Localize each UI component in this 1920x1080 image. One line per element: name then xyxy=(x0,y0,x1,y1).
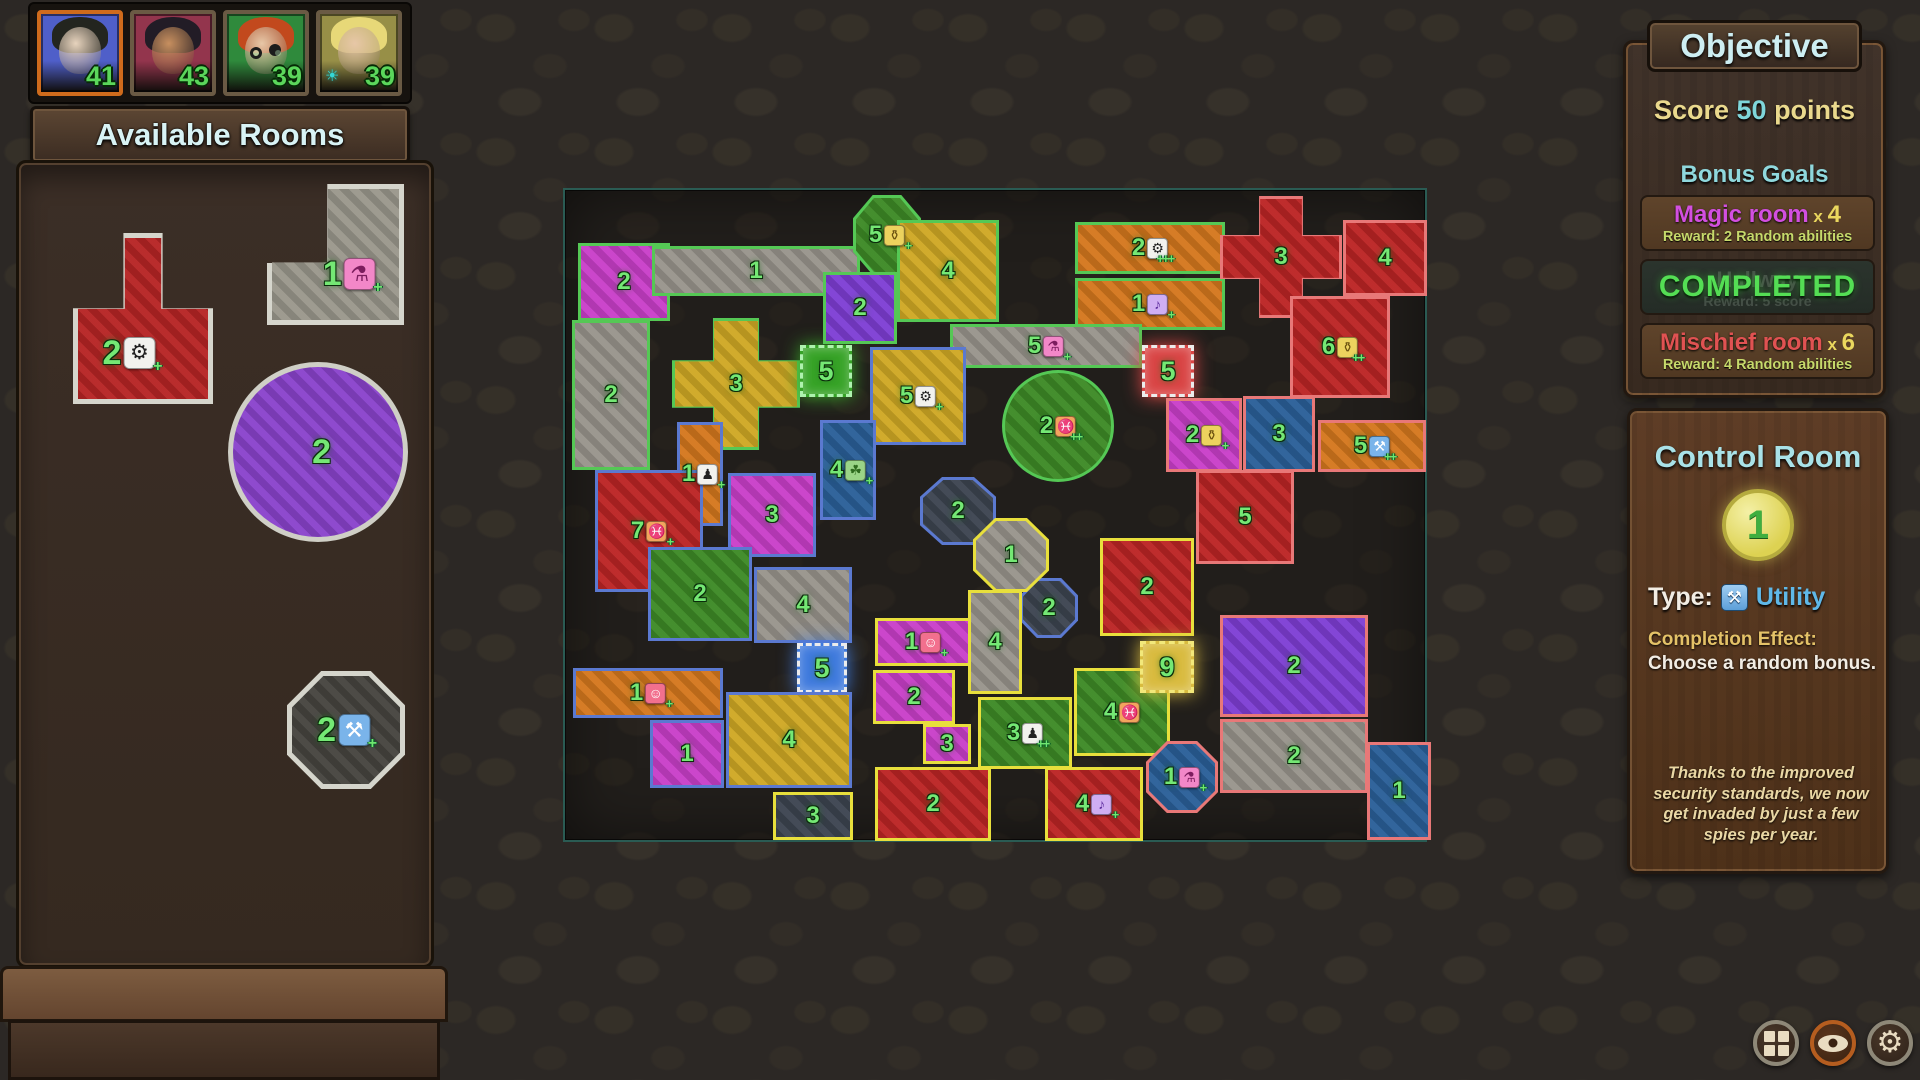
player-score: 43 xyxy=(179,61,209,92)
room-content: 2 xyxy=(1287,744,1300,768)
room-content: 3♟++ xyxy=(1007,721,1043,745)
view-eye-button[interactable] xyxy=(1810,1020,1856,1066)
type-value: Utility xyxy=(1756,583,1825,612)
room-number: 3 xyxy=(765,503,778,527)
map-bonus-tile[interactable]: 5 xyxy=(800,345,852,397)
plus-marks: + xyxy=(718,477,724,492)
map-room[interactable]: 6⚱++ xyxy=(1290,296,1390,398)
gear-icon: ⚙+ xyxy=(915,386,936,407)
flavor-text: Thanks to the improved security standard… xyxy=(1646,763,1876,846)
plus-marks: + xyxy=(666,696,672,711)
plus-marks: + xyxy=(373,279,380,297)
room-number: 2 xyxy=(951,499,964,523)
tile-floor xyxy=(78,238,208,399)
wrench-icon: ⚒++ xyxy=(1369,436,1390,457)
room-number: 5 xyxy=(814,655,829,682)
tile-number: 2 xyxy=(317,713,336,747)
plus-marks: +++ xyxy=(1156,251,1173,266)
room-number: 1 xyxy=(749,259,762,283)
room-content: 2⚱+ xyxy=(1186,423,1222,447)
map-room[interactable]: 2⚙+++ xyxy=(1075,222,1225,274)
score-value: 50 xyxy=(1737,95,1767,125)
map-room[interactable]: 5⚙+ xyxy=(870,347,966,445)
room-number: 2 xyxy=(926,792,939,816)
room-content: 5 xyxy=(1238,505,1251,529)
map-room[interactable]: 2⚱+ xyxy=(1166,398,1242,472)
plus-marks: ++ xyxy=(1384,449,1395,464)
available-rooms-header: Available Rooms xyxy=(30,106,410,164)
room-number: 1 xyxy=(1164,765,1177,789)
selected-room-panel: Control Room 1 Type: ⚒ Utility Completio… xyxy=(1627,408,1889,874)
type-label: Type: xyxy=(1648,583,1713,612)
goal-name-line: Mischief room x 6 xyxy=(1660,329,1855,357)
plus-marks: + xyxy=(1064,349,1070,364)
room-number: 5 xyxy=(818,358,833,385)
mischief-smiley-icon: ☺+ xyxy=(645,683,666,704)
objective-header: Objective xyxy=(1647,20,1862,72)
room-content: 1☺+ xyxy=(905,630,941,654)
room-number: 1 xyxy=(1392,779,1405,803)
map-room[interactable]: 2 xyxy=(572,320,650,470)
map-room[interactable]: 1♪+ xyxy=(1075,278,1225,330)
map-room[interactable]: 2 xyxy=(823,272,897,344)
treasure-bag-icon: ⚱++ xyxy=(1337,337,1358,358)
player-portrait[interactable]: 39 xyxy=(223,10,309,96)
completion-effect-text: Choose a random bonus. xyxy=(1648,653,1876,675)
room-number: 5 xyxy=(1238,505,1251,529)
room-content: 7♓+ xyxy=(631,519,667,543)
room-content: 2 xyxy=(1287,654,1300,678)
room-number: 9 xyxy=(1159,654,1174,681)
player-score: 39 xyxy=(272,61,302,92)
map-room[interactable]: 4 xyxy=(897,220,999,322)
room-content: 4 xyxy=(796,593,809,617)
room-content: 2 xyxy=(907,685,920,709)
plus-marks: + xyxy=(1200,780,1206,795)
room-number: 3 xyxy=(729,372,742,396)
gear-icon: ⚙ xyxy=(1877,1028,1904,1058)
player-score: 39 xyxy=(365,61,395,92)
room-number: 2 xyxy=(1040,414,1053,438)
music-note-icon: ♪+ xyxy=(1091,794,1112,815)
potion-icon: ⚗+ xyxy=(344,258,376,290)
room-number: 2 xyxy=(1287,654,1300,678)
potion-icon: ⚗+ xyxy=(1179,767,1200,788)
score-prefix: Score xyxy=(1654,95,1729,125)
settings-gear-button[interactable]: ⚙ xyxy=(1867,1020,1913,1066)
tile-content: 1⚗+ xyxy=(323,257,376,291)
person-icon: ♟++ xyxy=(1022,723,1043,744)
room-content: 1 xyxy=(680,742,693,766)
plus-marks: + xyxy=(866,473,872,488)
map-room[interactable]: 3♟++ xyxy=(978,697,1072,769)
mischief-smiley-icon: ☺+ xyxy=(920,632,941,653)
score-suffix: points xyxy=(1774,95,1855,125)
plus-marks: + xyxy=(1112,807,1118,822)
map-room[interactable]: 4♪+ xyxy=(1045,767,1143,841)
room-content: 5⚒++ xyxy=(1354,434,1390,458)
available-room-tile[interactable]: 2⚙+ xyxy=(73,233,213,404)
room-content: 2♓++ xyxy=(1040,414,1076,438)
room-number: 2 xyxy=(617,270,630,294)
room-number: 2 xyxy=(1140,575,1153,599)
room-number: 2 xyxy=(1186,423,1199,447)
room-content: 1♪+ xyxy=(1132,292,1168,316)
tile-number: 1 xyxy=(323,257,342,291)
sun-icon: ☀ xyxy=(325,66,339,86)
room-content: 2⚙+++ xyxy=(1132,236,1168,260)
map-room[interactable]: 2 xyxy=(1220,615,1368,717)
goal-completed-label: COMPLETED xyxy=(1659,270,1856,304)
room-content: 1♟+ xyxy=(682,462,718,486)
room-content: 4♪+ xyxy=(1076,792,1112,816)
available-room-tile[interactable]: 2 xyxy=(228,362,408,542)
fish-icon: ♓++ xyxy=(1055,416,1076,437)
room-number: 4 xyxy=(988,630,1001,654)
bonus-goals-title: Bonus Goals xyxy=(1626,161,1883,189)
room-number: 1 xyxy=(1132,292,1145,316)
room-content: 5⚙+ xyxy=(900,384,936,408)
map-bonus-tile[interactable]: 9 xyxy=(1140,641,1194,693)
map-room[interactable]: 3 xyxy=(1243,396,1315,472)
map-room[interactable]: 3 xyxy=(773,792,853,840)
room-content: 2 xyxy=(693,582,706,606)
map-room[interactable]: 4 xyxy=(754,567,852,643)
selected-room-title: Control Room xyxy=(1630,439,1886,475)
plus-marks: ++ xyxy=(1037,736,1048,751)
game-stage: 414339☀39 Available Rooms 2⚙+1⚗+22⚒+ 212… xyxy=(0,0,1920,1080)
available-rooms-title: Available Rooms xyxy=(96,117,345,153)
map-room[interactable]: 1☺+ xyxy=(573,668,723,718)
map-room[interactable]: 1 xyxy=(1367,742,1431,840)
room-number: 1 xyxy=(682,462,695,486)
treasure-bag-icon: ⚱+ xyxy=(884,225,905,246)
goal-multiplier: x 4 xyxy=(1809,207,1841,226)
room-content: 3 xyxy=(1272,422,1285,446)
leaf-icon: ☘+ xyxy=(845,460,866,481)
tile-content: 2⚒+ xyxy=(317,713,370,747)
bonus-goal-completed: HallwayReward: 5 scoreCOMPLETED xyxy=(1640,259,1875,315)
map-room[interactable]: 2 xyxy=(875,767,991,841)
map-bonus-tile[interactable]: 5 xyxy=(1142,345,1194,397)
room-number: 5 xyxy=(1354,434,1367,458)
potion-icon: ⚗+ xyxy=(1043,336,1064,357)
room-content: 5⚗+ xyxy=(1028,334,1064,358)
tile-number: 2 xyxy=(312,435,331,469)
room-number: 2 xyxy=(1132,236,1145,260)
map-room[interactable]: 1 xyxy=(650,720,724,788)
map-room[interactable]: 3 xyxy=(728,473,816,557)
available-room-tile[interactable]: 2⚒+ xyxy=(287,671,405,789)
map-room[interactable]: 4 xyxy=(726,692,852,788)
room-content: 3 xyxy=(806,804,819,828)
room-number: 2 xyxy=(604,383,617,407)
completion-effect-label: Completion Effect: xyxy=(1648,629,1817,651)
room-number: 4 xyxy=(830,458,843,482)
room-content: 4☘+ xyxy=(830,458,866,482)
goal-name-line: Magic room x 4 xyxy=(1674,201,1841,229)
tile-content: 2 xyxy=(312,435,331,469)
room-number: 3 xyxy=(940,732,953,756)
room-content: 4 xyxy=(782,728,795,752)
map-room[interactable]: 1 xyxy=(973,518,1049,592)
room-number: 2 xyxy=(1042,596,1055,620)
map-room[interactable]: 4☘+ xyxy=(820,420,876,520)
room-content: 3 xyxy=(729,372,742,396)
room-content: 6⚱++ xyxy=(1322,335,1358,359)
room-content: 2 xyxy=(926,792,939,816)
plus-marks: + xyxy=(905,238,911,253)
room-number: 1 xyxy=(630,681,643,705)
room-number: 2 xyxy=(693,582,706,606)
plus-marks: + xyxy=(941,645,947,660)
plus-marks: + xyxy=(667,534,673,549)
room-content: 4 xyxy=(941,259,954,283)
treasure-bag-icon: ⚱+ xyxy=(1201,425,1222,446)
room-content: 4 xyxy=(988,630,1001,654)
room-content: 1 xyxy=(1004,543,1017,567)
room-content: 4 xyxy=(1378,246,1391,270)
room-content: 1⚗+ xyxy=(1164,765,1200,789)
map-room[interactable]: 1☺+ xyxy=(875,618,971,666)
plus-marks: + xyxy=(1168,307,1174,322)
plus-marks: + xyxy=(153,358,160,376)
room-number: 2 xyxy=(853,296,866,320)
map-bonus-tile[interactable]: 5 xyxy=(797,643,847,693)
utility-wrench-icon: ⚒ xyxy=(1721,584,1748,611)
music-note-icon: ♪+ xyxy=(1147,294,1168,315)
room-content: 2 xyxy=(617,270,630,294)
plus-marks: + xyxy=(936,399,942,414)
player-score: 41 xyxy=(86,61,116,92)
available-room-tile[interactable]: 1⚗+ xyxy=(267,184,404,325)
plus-marks: ++ xyxy=(1070,429,1081,444)
room-number: 5 xyxy=(900,384,913,408)
room-count-badge: 1 xyxy=(1722,489,1794,561)
fish-icon: ♓ xyxy=(1119,702,1140,723)
map-room[interactable]: 4 xyxy=(968,590,1022,694)
map-room[interactable]: 4 xyxy=(1343,220,1427,296)
room-content: 3 xyxy=(940,732,953,756)
room-content: 2 xyxy=(853,296,866,320)
map-room[interactable]: 2 xyxy=(1220,719,1368,793)
room-number: 6 xyxy=(1322,335,1335,359)
objective-panel: Score 50 points Bonus Goals Magic room x… xyxy=(1623,40,1886,398)
room-number: 1 xyxy=(680,742,693,766)
room-number: 4 xyxy=(1076,792,1089,816)
goal-reward: Reward: 4 Random abilities xyxy=(1663,357,1852,373)
room-content: 3 xyxy=(765,503,778,527)
map-room[interactable]: 5 xyxy=(1196,470,1294,564)
room-content: 2 xyxy=(951,499,964,523)
room-content: 4♓ xyxy=(1104,700,1140,724)
layout-grid-button[interactable] xyxy=(1753,1020,1799,1066)
room-number: 5 xyxy=(1028,334,1041,358)
plus-marks: + xyxy=(1222,438,1228,453)
person-icon: ♟+ xyxy=(697,464,718,485)
room-number: 1 xyxy=(1004,543,1017,567)
player-portrait[interactable]: 41 xyxy=(37,10,123,96)
map-room[interactable]: 1⚗+ xyxy=(1146,741,1218,813)
fish-icon: ♓+ xyxy=(646,521,667,542)
player-portrait[interactable]: 43 xyxy=(130,10,216,96)
gear-icon: ⚙+ xyxy=(123,337,155,369)
goal-multiplier: x 6 xyxy=(1823,335,1855,354)
room-number: 3 xyxy=(1007,721,1020,745)
room-number: 4 xyxy=(1104,700,1117,724)
panel-base xyxy=(0,966,448,1022)
room-number: 4 xyxy=(941,259,954,283)
room-content: 2 xyxy=(1042,596,1055,620)
room-number: 5 xyxy=(869,223,882,247)
grid-icon xyxy=(1764,1031,1789,1056)
goal-name: Mischief room xyxy=(1660,329,1823,356)
plus-marks: + xyxy=(368,735,375,753)
room-number: 4 xyxy=(782,728,795,752)
bonus-goal: Magic room x 4Reward: 2 Random abilities xyxy=(1640,195,1875,251)
panel-base-lower xyxy=(8,1020,440,1080)
room-number: 4 xyxy=(796,593,809,617)
room-number: 4 xyxy=(1378,246,1391,270)
eye-icon xyxy=(1818,1035,1848,1052)
room-number: 3 xyxy=(1274,245,1287,269)
room-content: 1☺+ xyxy=(630,681,666,705)
map-room[interactable]: 2 xyxy=(1100,538,1194,636)
room-content: 2 xyxy=(1140,575,1153,599)
gear-icon: ⚙+++ xyxy=(1147,238,1168,259)
map-room[interactable]: 2 xyxy=(873,670,955,724)
room-number: 5 xyxy=(1160,358,1175,385)
wrench-icon: ⚒+ xyxy=(338,714,370,746)
room-number: 3 xyxy=(806,804,819,828)
goal-name: Magic room xyxy=(1674,201,1809,228)
room-type-line: Type: ⚒ Utility xyxy=(1648,583,1825,612)
room-content: 1 xyxy=(1392,779,1405,803)
objective-score: Score 50 points xyxy=(1626,95,1883,126)
room-content: 2 xyxy=(604,383,617,407)
tile-content: 2⚙+ xyxy=(103,336,156,370)
map-room[interactable]: 5⚗+ xyxy=(950,324,1142,368)
map-room[interactable]: 3 xyxy=(923,724,971,764)
map-room[interactable]: 2♓++ xyxy=(1002,370,1114,482)
room-number: 2 xyxy=(1287,744,1300,768)
map-room[interactable]: 5⚒++ xyxy=(1318,420,1426,472)
plus-marks: ++ xyxy=(1352,350,1363,365)
goal-reward: Reward: 2 Random abilities xyxy=(1663,229,1852,245)
room-number: 2 xyxy=(907,685,920,709)
room-content: 3 xyxy=(1274,245,1287,269)
player-portrait[interactable]: ☀39 xyxy=(316,10,402,96)
room-number: 1 xyxy=(905,630,918,654)
tile-number: 2 xyxy=(103,336,122,370)
objective-title: Objective xyxy=(1680,27,1829,65)
room-content: 1 xyxy=(749,259,762,283)
room-content: 5⚱+ xyxy=(869,223,905,247)
room-number: 3 xyxy=(1272,422,1285,446)
bonus-goal: Mischief room x 6Reward: 4 Random abilit… xyxy=(1640,323,1875,379)
room-number: 7 xyxy=(631,519,644,543)
map-room[interactable]: 2 xyxy=(648,547,752,641)
